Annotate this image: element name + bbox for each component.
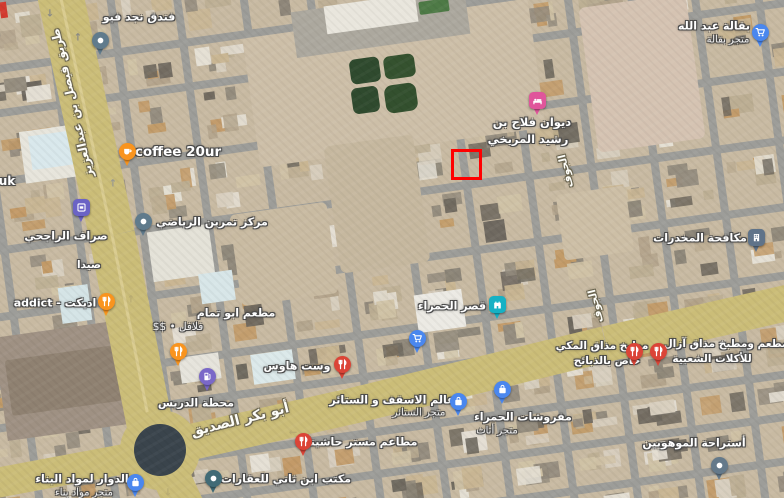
bag-icon <box>450 393 467 410</box>
poi-label-diwan-falah-almarekhi[interactable]: ديوان فلاح بن <box>493 115 571 129</box>
restaurant-icon <box>295 433 312 450</box>
poi-label-ibn-thani-realestate[interactable]: مكتب ابن ثاني للعقارات <box>221 473 351 486</box>
poi-label-building-materials-store-1[interactable]: متجر مواد بناء <box>55 488 113 498</box>
poi-label-hamra-furnishings-1[interactable]: متجر أثاث <box>476 426 518 437</box>
dot-icon <box>92 32 109 49</box>
restaurant-icon <box>650 343 667 360</box>
poi-label-coffee-20ur[interactable]: coffee 20ur <box>135 144 221 160</box>
highlight-rectangle <box>451 149 482 180</box>
poi-label-building-materials-store[interactable]: الدوار لمواد البناء <box>35 473 128 486</box>
poi-label-drug-control-office[interactable]: مكافحة المخدرات <box>653 232 747 245</box>
poi-label-mazaq-azal-restaurant[interactable]: مطعم ومطبخ مذاق آزال <box>664 338 784 350</box>
poi-label-sidon-label[interactable]: صيدا <box>77 259 101 271</box>
bag-icon <box>494 381 511 398</box>
poi-label-addict-restaurant[interactable]: addict - اديكت <box>14 297 97 310</box>
restaurant-icon <box>334 356 351 373</box>
bed-icon <box>529 92 546 109</box>
poi-label-hamra-furnishings[interactable]: مفروشات الحمراء <box>474 411 572 424</box>
poi-label-aldrees-station[interactable]: محطة الدريس <box>158 397 234 410</box>
building-icon <box>748 229 765 246</box>
poi-label-rajhi-atm[interactable]: صراف الراجحي <box>24 230 107 243</box>
fuel-icon <box>199 368 216 385</box>
poi-label-abu-tamam-restaurant[interactable]: مطعم ابو تمام <box>197 307 276 320</box>
poi-label-abu-tamam-restaurant-1[interactable]: فلافل • $$ <box>153 321 204 333</box>
coffee-icon <box>119 143 136 160</box>
poi-label-najd-view-hotel[interactable]: فندق نجد فيو <box>103 11 176 24</box>
dot-icon <box>205 470 222 487</box>
bag-icon <box>127 474 144 491</box>
map-overlay: طريق فيصل بن عبدالعزيزأبو بكر الصديقالجو… <box>0 0 784 498</box>
castle-icon <box>489 296 506 313</box>
poi-label-mister-hashina-restaurants[interactable]: مطاعم مستر حاشينا <box>307 436 418 449</box>
restaurant-icon <box>98 293 115 310</box>
poi-label-ceilings-curtains-world-1[interactable]: متجر الستائر <box>393 408 446 419</box>
cart-icon <box>752 24 769 41</box>
cart-icon <box>409 330 426 347</box>
poi-label-mazaq-azal-restaurant-1[interactable]: للأكلات الشعبية <box>672 353 751 365</box>
poi-label-ceilings-curtains-world[interactable]: عالم الاسقف و الستائر <box>329 394 454 407</box>
poi-label-qasr-alhamra[interactable]: قصر الحمراء <box>418 300 486 313</box>
aljawf-road-label-1: الجوف <box>556 153 576 189</box>
dot-icon <box>711 457 728 474</box>
poi-label-exercise-center[interactable]: مركز تمرين الرياضي <box>156 216 268 229</box>
map-canvas[interactable]: ↓↑↑↑←←↓ طريق فيصل بن عبدالعزيزأبو بكر ال… <box>0 0 784 498</box>
poi-label-abdullah-grocery-1[interactable]: متجر بقالة <box>707 35 750 46</box>
poi-label-diwan-falah-almarekhi-1[interactable]: رشيد المريخي <box>488 132 569 146</box>
dot-icon <box>135 213 152 230</box>
restaurant-icon <box>170 343 187 360</box>
poi-label-mawhoobin-resthouse[interactable]: أستراحة الموهوبين <box>642 437 745 450</box>
aljawf-road-label-2: الجوف <box>586 288 606 324</box>
poi-label-west-house-restaurant[interactable]: وست هاوس <box>264 360 331 373</box>
restaurant-icon <box>626 343 643 360</box>
faisal-road-label: طريق فيصل بن عبدالعزيز <box>48 27 96 178</box>
poi-label-abdullah-grocery[interactable]: بقالة عبد الله <box>678 20 750 33</box>
atm-icon <box>73 199 90 216</box>
poi-label-uk-partial-label[interactable]: uk <box>0 174 15 188</box>
